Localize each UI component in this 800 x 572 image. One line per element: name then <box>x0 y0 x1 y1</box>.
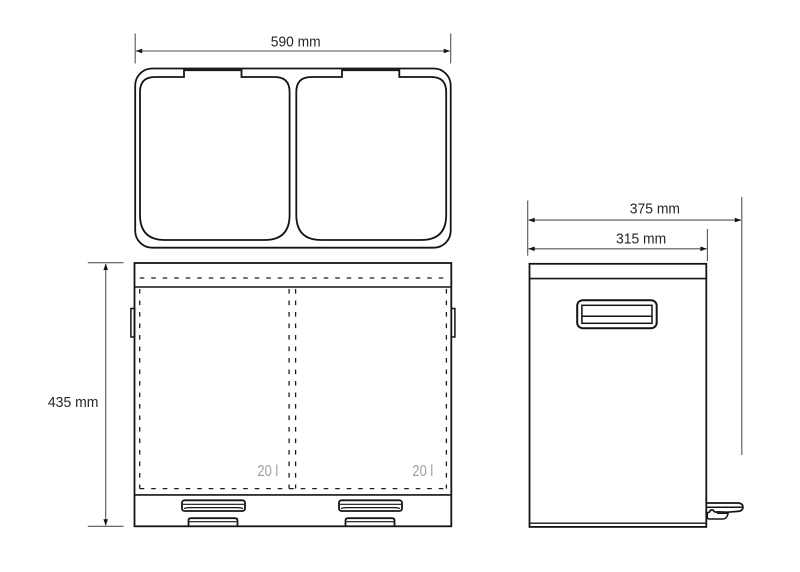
svg-text:435 mm: 435 mm <box>48 394 99 411</box>
svg-text:375 mm: 375 mm <box>630 201 680 218</box>
svg-text:315 mm: 315 mm <box>616 230 666 247</box>
svg-text:590 mm: 590 mm <box>271 33 321 50</box>
svg-text:20 l: 20 l <box>412 463 433 480</box>
svg-text:20 l: 20 l <box>257 463 278 480</box>
